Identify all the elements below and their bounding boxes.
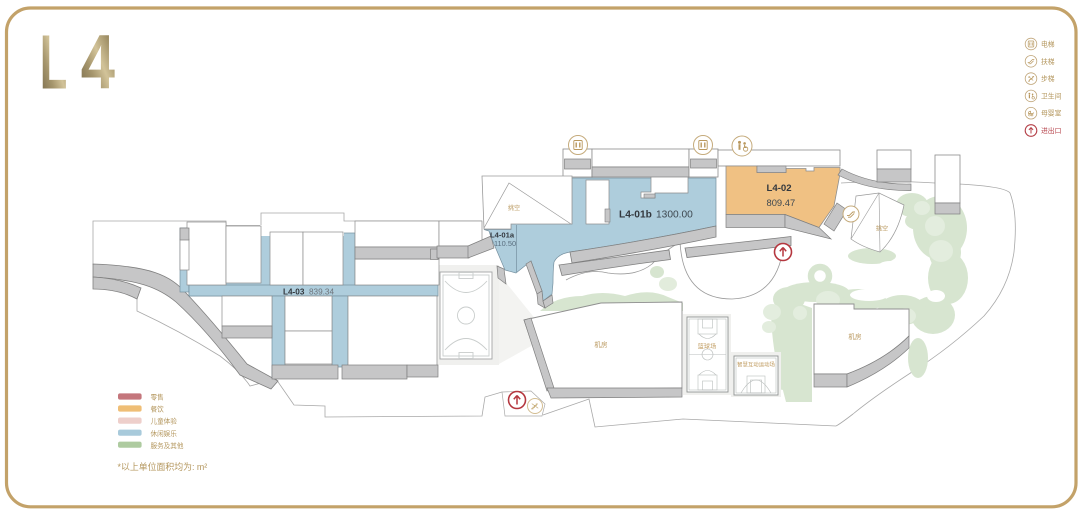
svg-text:休闲娱乐: 休闲娱乐	[151, 429, 178, 438]
svg-text:扶梯: 扶梯	[1041, 57, 1055, 66]
svg-text:步梯: 步梯	[1041, 74, 1055, 83]
svg-text:839.34: 839.34	[309, 288, 334, 297]
svg-text:4: 4	[81, 19, 115, 105]
svg-text:机房: 机房	[594, 340, 608, 349]
svg-text:卫生间: 卫生间	[1041, 91, 1062, 100]
svg-text:智慧互动运动场: 智慧互动运动场	[737, 361, 775, 369]
svg-text:篮球场: 篮球场	[698, 343, 717, 351]
svg-text:母婴室: 母婴室	[1041, 109, 1062, 118]
svg-text:110.50: 110.50	[494, 239, 516, 248]
svg-text:儿童体验: 儿童体验	[151, 417, 178, 426]
svg-text:L: L	[40, 19, 68, 105]
svg-text:1300.00: 1300.00	[656, 210, 693, 221]
svg-text:L4-03: L4-03	[283, 288, 305, 297]
svg-text:餐饮: 餐饮	[151, 405, 165, 414]
svg-text:进出口: 进出口	[1041, 126, 1061, 135]
svg-text:机房: 机房	[848, 332, 862, 341]
svg-text:电梯: 电梯	[1041, 40, 1055, 49]
svg-text:809.47: 809.47	[767, 197, 796, 208]
svg-text:*以上单位面积均为: m²: *以上单位面积均为: m²	[118, 461, 208, 472]
svg-text:挑空: 挑空	[876, 225, 888, 233]
svg-text:零售: 零售	[151, 393, 164, 402]
svg-text:挑空: 挑空	[508, 204, 520, 212]
svg-text:L4-02: L4-02	[767, 183, 792, 194]
svg-text:服务及其他: 服务及其他	[151, 441, 184, 450]
svg-text:L4-01b: L4-01b	[619, 210, 652, 221]
